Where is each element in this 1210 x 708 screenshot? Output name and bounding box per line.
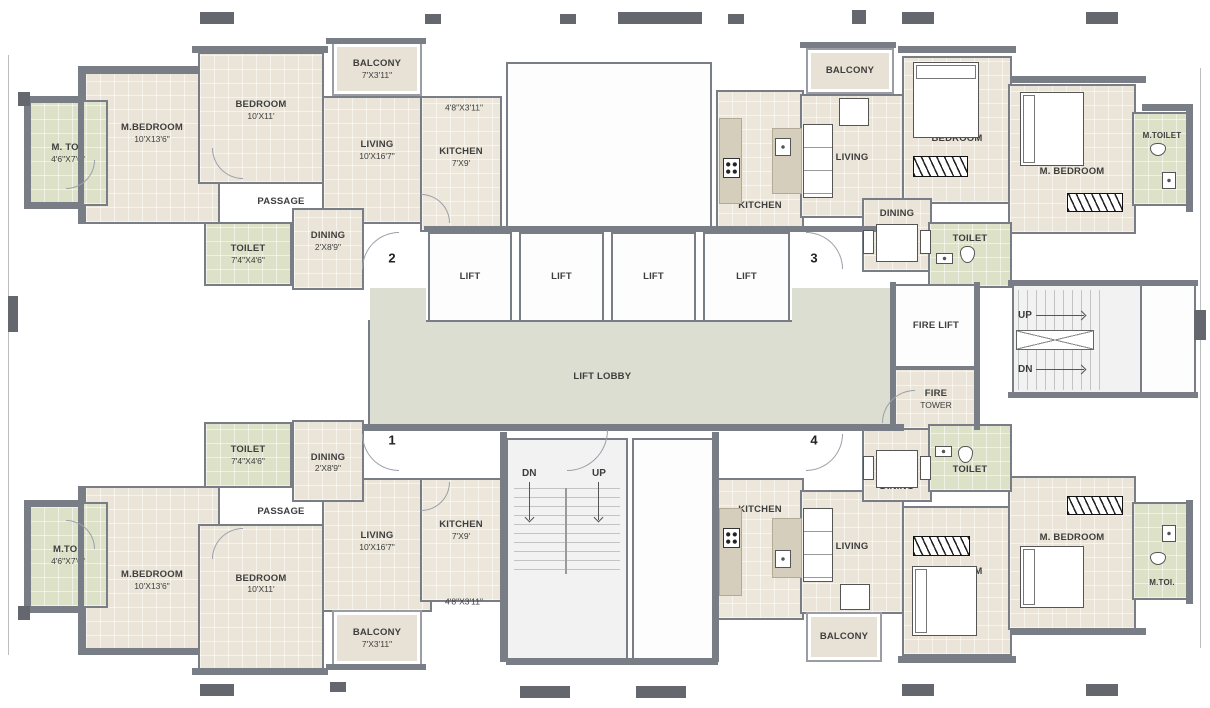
column-stub [728, 14, 744, 24]
room-label: M.BEDROOM10'X13'6" [121, 122, 183, 145]
room-dim-text: 7'X3'11" [353, 639, 401, 650]
stair-landing [1016, 330, 1094, 350]
room-label: M. BEDROOM [1040, 532, 1105, 544]
kitchen-counter [772, 518, 802, 578]
column-stub [18, 92, 30, 106]
wall-segment [1010, 628, 1146, 635]
room-lift-3: LIFT [611, 232, 696, 322]
column-stub [330, 682, 346, 692]
column-stub [425, 14, 441, 24]
room-name-text: LIVING [836, 152, 869, 164]
room-label: BEDROOM10'X11' [235, 99, 286, 122]
room-label: KITCHEN [738, 200, 782, 212]
room-name-text: DINING [880, 208, 914, 220]
column-stub [560, 14, 576, 24]
room-label: DINING [880, 208, 914, 220]
bed-pillow [915, 569, 927, 633]
wall-segment [24, 202, 84, 209]
stair-direction-label: DN [1018, 364, 1084, 375]
bed [912, 566, 977, 636]
room-label: LIVING [836, 541, 869, 553]
room-label: LIFT [736, 271, 757, 283]
room-dim-text: 7'4"X4'6" [231, 456, 266, 467]
room-dim-text: 10'X11' [235, 111, 286, 122]
floor-plan: M.BEDROOM10'X13'6"BEDROOM10'X11'LIVING10… [0, 0, 1210, 708]
room-fire-lift: FIRE LIFT [894, 284, 978, 368]
kitchen-counter [719, 508, 742, 596]
room-label: 4'8"X3'11" [445, 103, 483, 114]
stair-direction-text: DN [1018, 364, 1032, 375]
room-dining-tl: DINING2'X8'9" [292, 208, 364, 290]
dining-table [876, 450, 918, 488]
wall-segment [898, 46, 1016, 53]
chair [863, 230, 874, 254]
room-dim-text: 10'X16'7" [359, 542, 395, 553]
room-name-text: LIVING [836, 541, 869, 553]
column-stub [200, 684, 234, 696]
wall-segment [500, 432, 507, 662]
stair-arrow-icon [598, 482, 599, 520]
room-name-text: LIFT [460, 271, 481, 283]
wall-segment [1008, 280, 1198, 286]
sofa [803, 124, 833, 198]
room-dim-text: 4'8"X3'11" [445, 597, 483, 608]
wall-segment [24, 606, 84, 613]
sink-icon [775, 550, 791, 568]
room-label: TOILET [953, 233, 988, 245]
room-name-text: KITCHEN [439, 146, 483, 158]
room-label: TOILET7'4"X4'6" [231, 243, 266, 266]
room-label: LIFT [460, 271, 481, 283]
building-edge-line [1200, 68, 1201, 648]
room-dim-text: TOWER [920, 400, 951, 411]
room-label: TOILET7'4"X4'6" [231, 444, 266, 467]
wall-segment [1010, 76, 1146, 83]
unit-marker-4: 4 [810, 433, 817, 448]
room-lobby-notch-left [370, 288, 426, 324]
room-dim-text: 10'X11' [235, 584, 286, 595]
wall-segment [424, 226, 902, 232]
column-stub [520, 686, 570, 698]
room-label: LIVING [836, 152, 869, 164]
wall-segment [78, 648, 198, 655]
room-label: FIRE LIFT [913, 320, 959, 332]
column-stub [1086, 12, 1118, 24]
room-name-text: LIFT LOBBY [573, 371, 631, 383]
room-name-text: M.BEDROOM [121, 122, 183, 134]
room-dim-text: 7'X3'11" [353, 70, 401, 81]
wall-segment [192, 668, 328, 675]
room-name-text: KITCHEN [439, 519, 483, 531]
room-dim-text: 4'8"X3'11" [445, 103, 483, 114]
room-label: DINING2'X8'9" [311, 451, 345, 474]
room-lift-lobby: LIFT LOBBY [368, 320, 900, 428]
room-balcony-tl: BALCONY7'X3'11" [332, 42, 422, 96]
room-name-text: M.TOI. [1149, 578, 1175, 588]
room-name-text: BALCONY [826, 65, 874, 77]
room-dim-text: 2'X8'9" [311, 242, 345, 253]
room-name-text: LIFT [643, 271, 664, 283]
room-lift-4: LIFT [703, 232, 790, 322]
room-name-text: KITCHEN [738, 504, 782, 516]
room-name-text: PASSAGE [257, 506, 304, 518]
room-toilet-bl: TOILET7'4"X4'6" [204, 422, 292, 488]
room-balcony-br: BALCONY [806, 612, 882, 662]
sink-icon [1162, 525, 1176, 542]
room-name-text: BEDROOM [235, 572, 286, 584]
room-label: BEDROOM10'X11' [235, 572, 286, 595]
wall-segment [78, 486, 84, 652]
chair [920, 230, 931, 254]
room-label: BALCONY7'X3'11" [353, 627, 401, 650]
room-name-text: TOILET [231, 444, 266, 456]
column-stub [8, 296, 18, 332]
room-kitchen-dim-tl: 4'8"X3'11" [425, 96, 503, 116]
room-name-text: LIFT [551, 271, 572, 283]
bed-pillow [1023, 95, 1035, 163]
stair-direction-text: DN [522, 468, 536, 479]
room-kitchen-dim-bl: 4'8"X3'11" [425, 592, 503, 612]
room-name-text: FIRE [920, 388, 951, 400]
room-name-text: TOILET [953, 464, 988, 476]
room-label: BALCONY [826, 65, 874, 77]
room-label: TOILET [953, 464, 988, 476]
column-stub [902, 12, 934, 24]
stair-divider [565, 488, 567, 574]
room-dim-text: 2'X8'9" [311, 463, 345, 474]
sink-icon [775, 138, 791, 156]
stair-direction-label: UP [592, 468, 606, 520]
room-dim-text: 7'4"X4'6" [231, 255, 266, 266]
room-dim-text: 10'X16'7" [359, 151, 395, 162]
room-label: 4'8"X3'11" [445, 597, 483, 608]
wall-segment [326, 664, 426, 670]
room-name-text: KITCHEN [738, 200, 782, 212]
stove-icon [723, 158, 740, 178]
wall-segment [78, 66, 198, 73]
wardrobe [1067, 193, 1123, 212]
room-lobby-notch-right [792, 288, 898, 324]
room-name-text: BALCONY [353, 58, 401, 70]
sink-icon [935, 446, 952, 457]
wardrobe [913, 536, 970, 556]
wardrobe [1067, 496, 1123, 515]
room-duct-top [506, 62, 712, 232]
wall-segment [24, 500, 84, 507]
stair-direction-label: DN [522, 468, 536, 520]
room-name-text: M.BEDROOM [121, 569, 183, 581]
bed [1020, 546, 1084, 608]
room-m-toilet-tr: M.TOILET [1132, 112, 1192, 206]
stair-arrow-icon [1036, 315, 1084, 316]
bed [913, 62, 979, 138]
stair-arrow-icon [1036, 369, 1084, 370]
room-name-text: M. BEDROOM [1040, 166, 1105, 178]
unit-marker-3: 3 [810, 251, 817, 266]
room-name-text: FIRE LIFT [913, 320, 959, 332]
room-label: M.TOI. [1149, 578, 1175, 588]
wall-segment [506, 658, 718, 665]
wardrobe [913, 156, 968, 177]
stair-direction-text: UP [592, 468, 606, 479]
room-passage-tl: PASSAGE [206, 184, 356, 220]
room-lift-1: LIFT [428, 232, 512, 322]
room-label: LIVING10'X16'7" [359, 139, 395, 162]
room-label: DINING2'X8'9" [311, 230, 345, 253]
room-name-text: BEDROOM [235, 99, 286, 111]
room-toilet-tl: TOILET7'4"X4'6" [204, 222, 292, 286]
wall-segment [974, 282, 980, 430]
room-balcony-bl: BALCONY7'X3'11" [332, 610, 422, 666]
sink-icon [1162, 172, 1176, 189]
room-label: M. BEDROOM [1040, 166, 1105, 178]
column-stub [618, 12, 702, 24]
room-label: KITCHEN [738, 504, 782, 516]
room-label: M.BEDROOM10'X13'6" [121, 569, 183, 592]
room-label: LIFT [643, 271, 664, 283]
wall-segment [800, 42, 896, 48]
room-label: KITCHEN7'X9' [439, 146, 483, 169]
bed-pillow [1023, 549, 1035, 605]
room-label: BALCONY [820, 631, 868, 643]
room-m-toi-tl: M. TOI.4'6"X7'6" [28, 100, 108, 206]
wall-segment [1186, 104, 1193, 212]
room-label: KITCHEN7'X9' [439, 519, 483, 542]
column-stub [18, 606, 30, 620]
wall-segment [712, 432, 719, 662]
wall-segment [24, 96, 31, 208]
column-stub [200, 12, 234, 24]
column-stub [852, 10, 866, 24]
room-name-text: BALCONY [820, 631, 868, 643]
wall-segment [898, 656, 1016, 663]
room-label: LIFT [551, 271, 572, 283]
wall-segment [1186, 500, 1193, 604]
wall-segment [78, 70, 84, 224]
room-passage-bl: PASSAGE [206, 494, 356, 530]
column-stub [902, 684, 934, 696]
room-name-text: LIVING [359, 139, 395, 151]
stove-icon [723, 528, 740, 548]
chair [863, 456, 874, 480]
room-dim-text: 10'X13'6" [121, 581, 183, 592]
chair [920, 456, 931, 480]
column-stub [1086, 684, 1118, 696]
wall-segment [24, 96, 84, 103]
chair [839, 98, 869, 126]
room-dim-text: 7'X9' [439, 531, 483, 542]
room-dim-text: 7'X9' [439, 158, 483, 169]
wall-segment [326, 38, 426, 44]
room-label: LIFT LOBBY [573, 371, 631, 383]
room-dining-bl: DINING2'X8'9" [292, 420, 364, 502]
room-m-toi-br: M.TOI. [1132, 502, 1192, 600]
room-name-text: LIVING [359, 530, 395, 542]
room-dim-text: 10'X13'6" [121, 134, 183, 145]
room-label: FIRETOWER [920, 388, 951, 411]
room-label: PASSAGE [257, 196, 304, 208]
column-stub [636, 686, 686, 698]
room-name-text: BALCONY [353, 627, 401, 639]
room-label: PASSAGE [257, 506, 304, 518]
dining-table [876, 224, 918, 262]
sofa [803, 508, 833, 582]
room-name-text: TOILET [953, 233, 988, 245]
wall-segment [1008, 392, 1198, 398]
room-name-text: LIFT [736, 271, 757, 283]
building-edge-line [8, 55, 9, 655]
room-name-text: M. BEDROOM [1040, 532, 1105, 544]
room-balcony-tr: BALCONY [806, 48, 894, 94]
unit-marker-2: 2 [388, 251, 395, 266]
bed [1020, 92, 1084, 166]
column-stub [1194, 310, 1206, 340]
wall-segment [1142, 104, 1190, 111]
room-label: BALCONY7'X3'11" [353, 58, 401, 81]
chair [840, 584, 870, 610]
stair-direction-text: UP [1018, 310, 1032, 321]
room-stair-right-landing [1140, 284, 1196, 396]
sink-icon [936, 253, 953, 264]
room-label: LIVING10'X16'7" [359, 530, 395, 553]
wall-segment [364, 424, 904, 431]
stair-direction-label: UP [1018, 310, 1084, 321]
room-name-text: DINING [311, 451, 345, 463]
room-lift-2: LIFT [519, 232, 604, 322]
room-duct-bottom [632, 438, 716, 662]
wall-segment [24, 500, 31, 612]
room-name-text: PASSAGE [257, 196, 304, 208]
room-m-toi-bl: M.TOI.4'6"X7'6" [28, 502, 108, 608]
wall-segment [192, 46, 328, 53]
room-name-text: TOILET [231, 243, 266, 255]
room-name-text: M.TOILET [1143, 131, 1182, 141]
bed-pillow [916, 65, 976, 79]
unit-marker-1: 1 [388, 433, 395, 448]
stair-arrow-icon [529, 482, 530, 520]
room-name-text: DINING [311, 230, 345, 242]
room-label: M.TOILET [1143, 131, 1182, 141]
